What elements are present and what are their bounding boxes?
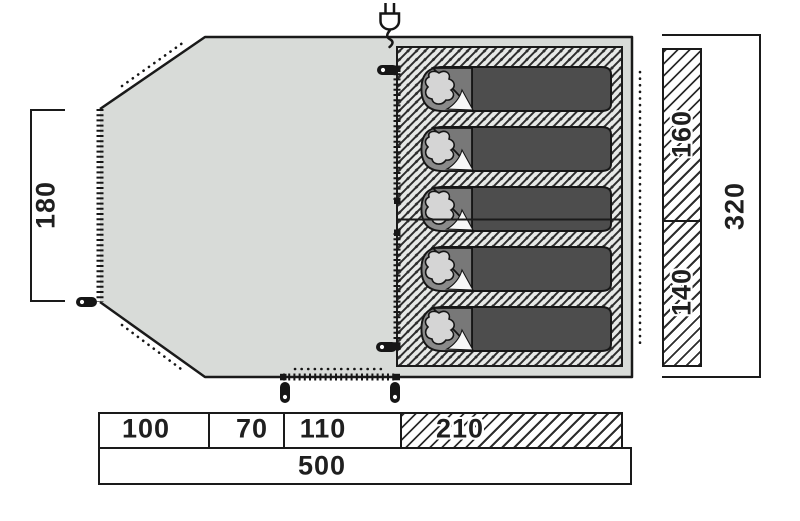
dimension-label-500: 500 [298,453,346,480]
tent-peg-icon-left-vertex [76,297,97,307]
sleeping-bag-3 [422,187,612,231]
dimension-label-320: 320 [722,182,749,230]
zipper-stop [280,374,287,381]
dimension-label-110: 110 [300,416,347,443]
tent-peg-icon-bedroom-bottom [376,342,397,352]
zipper-stop [394,230,401,237]
dimension-label-70: 70 [236,416,268,443]
zipper-stop [394,198,401,205]
tent-floorplan-diagram: 180 160 140 320 100 70 110 210 500 [0,0,800,521]
sleeping-bag-4 [422,247,612,291]
tent-peg-icon-door-right [390,382,400,403]
sleeping-bag-2 [422,127,612,171]
sleeping-bag-5 [422,307,612,351]
tent-peg-icon-door-left [280,382,290,403]
sleeping-bag-1 [422,67,612,111]
dimension-label-210: 210 [436,416,484,443]
segment-cell-210 [402,414,621,447]
dimension-label-180: 180 [33,181,60,229]
dimension-row-total [98,447,632,485]
tent-peg-icon-bedroom-top [377,65,398,75]
dimension-label-100: 100 [122,416,170,443]
zipper-stop [394,374,401,381]
dimension-row-segments [98,412,623,447]
